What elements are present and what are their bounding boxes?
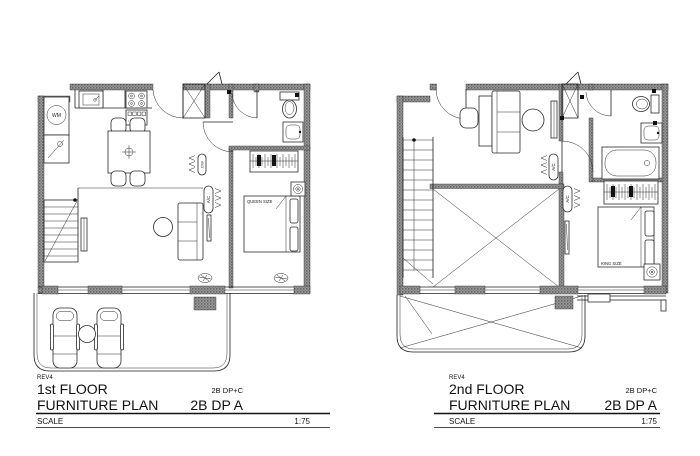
ceiling-light — [291, 182, 305, 196]
toilet — [633, 89, 660, 113]
toilet — [280, 92, 299, 118]
sofa — [492, 91, 520, 153]
tv — [551, 101, 557, 138]
duct-shaft — [183, 72, 222, 118]
ac-condenser — [555, 296, 573, 309]
unit-code-small: 2B DP+C — [626, 386, 658, 395]
window-band — [400, 286, 666, 294]
plan-type-title: FURNITURE PLAN — [37, 397, 158, 413]
family-room — [460, 91, 564, 153]
coffee-table — [154, 218, 173, 237]
pillow — [290, 227, 298, 251]
ac-label: A/C — [565, 195, 570, 203]
plant — [198, 274, 212, 283]
side-table — [79, 326, 96, 343]
unit-code-small: 2B DP+C — [212, 386, 244, 395]
pillow — [290, 199, 298, 223]
round-table — [522, 109, 544, 131]
ac-label: A/C — [551, 163, 556, 171]
switch-symbol — [560, 116, 564, 120]
bathroom — [227, 90, 303, 142]
shaft-access-door — [207, 72, 222, 84]
dw-unit: DW — [189, 154, 206, 175]
ac-unit-bedroom: A/C — [204, 186, 221, 213]
double-height-void — [433, 189, 559, 287]
dw-label: DW — [199, 161, 204, 168]
washing-machine-label: WM — [52, 113, 61, 119]
floor-title: 1st FLOOR — [37, 381, 108, 397]
switch-symbol — [227, 90, 231, 94]
desk — [479, 96, 492, 146]
title-block-first: REV4 1st FLOOR 2B DP+C FURNITURE PLAN 2B… — [36, 375, 330, 428]
mirror — [207, 215, 211, 241]
bedroom-door — [562, 141, 593, 172]
ceiling-light — [644, 264, 660, 280]
king-bed: KING SIZE — [598, 207, 654, 267]
switch-symbol — [653, 121, 657, 125]
unit-code: 2B DP A — [190, 397, 243, 413]
planter — [588, 294, 610, 302]
switch-symbol — [580, 95, 584, 99]
basin — [283, 122, 303, 142]
ac-label: A/C — [206, 195, 211, 203]
pillow — [645, 211, 654, 236]
dining-chair — [130, 171, 145, 186]
bathtub — [602, 147, 659, 179]
ac-condenser — [194, 297, 216, 310]
second-floor-plan: A/C — [397, 72, 668, 428]
closet — [250, 151, 298, 172]
shaft-access-door — [566, 72, 581, 84]
lounger-chair — [94, 308, 123, 368]
bed-size-label: QUEEN SIZE — [247, 199, 273, 204]
mirror — [565, 221, 569, 254]
scale-label: SCALE — [37, 417, 63, 426]
scale-label: SCALE — [449, 417, 475, 426]
sofa — [178, 203, 203, 260]
closet — [604, 181, 658, 204]
plan-type-title: FURNITURE PLAN — [449, 397, 570, 413]
washing-machine: WM — [44, 97, 69, 135]
floor-plan-drawing: WM — [0, 0, 700, 456]
scale-value: 1:75 — [294, 417, 310, 426]
bed-size-label: KING SIZE — [601, 261, 622, 266]
kitchen-tall-unit — [44, 135, 69, 163]
terrace — [34, 293, 230, 371]
bedroom-balcony-ledge — [577, 294, 666, 311]
basin — [641, 123, 662, 143]
title-block-second: REV4 2nd FLOOR 2B DP+C FURNITURE PLAN 2B… — [434, 375, 660, 428]
lounger-chair — [50, 308, 79, 368]
dining-chair — [111, 171, 126, 186]
dining-set — [108, 118, 150, 186]
tv — [81, 218, 87, 251]
stairs — [44, 188, 78, 262]
entry-door — [153, 88, 183, 118]
terrace — [397, 295, 585, 352]
floor-title: 2nd FLOOR — [449, 381, 524, 397]
scale-value: 1:75 — [641, 417, 657, 426]
window-band — [38, 286, 310, 294]
floor-plan-sheet: WM — [0, 0, 700, 456]
queen-bed: QUEEN SIZE — [244, 196, 300, 252]
kitchen-sink — [79, 91, 103, 108]
exterior-walls — [38, 84, 310, 293]
pillow — [645, 240, 654, 265]
unit-code: 2B DP A — [604, 397, 657, 413]
first-floor-plan: WM — [34, 72, 330, 428]
plant — [274, 274, 288, 283]
duct-shaft — [562, 72, 581, 118]
stairs — [403, 137, 433, 334]
ac-unit-family: A/C — [541, 154, 558, 180]
ac-unit-bedroom: A/C — [563, 186, 580, 212]
desk-chair — [460, 108, 478, 128]
bedroom-door — [203, 122, 233, 152]
